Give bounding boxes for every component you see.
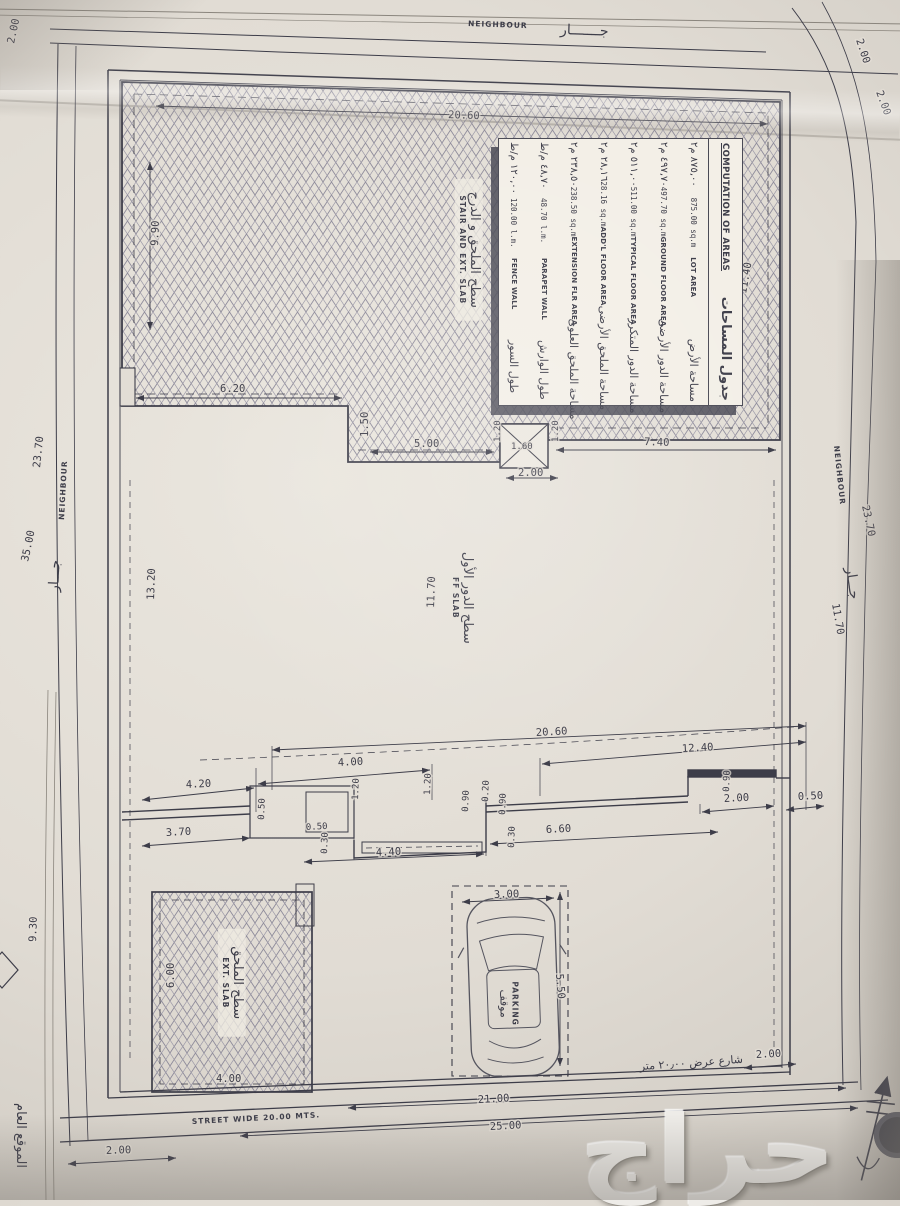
cell-value: 48.70 l.m. bbox=[539, 198, 548, 258]
site-plan-partial-label: الموقع العام bbox=[13, 1103, 28, 1168]
dim-roof-step-740: 7.40 bbox=[644, 436, 670, 449]
dim-band-120v2: 1.20 bbox=[423, 773, 434, 795]
cell-value: 238.50 sq.m bbox=[569, 187, 578, 237]
cell-value: 875.00 sq.m bbox=[689, 198, 698, 258]
cell-value-ar: ٤٩٧,٧٠ م٢ bbox=[658, 142, 669, 187]
dim-right-2370: 23.70 bbox=[859, 504, 877, 537]
table-row: ١٢٠,٠٠ م/ط120.00 l.m.FENCE WALLطول السور bbox=[499, 139, 529, 405]
dim-band-200: 2.00 bbox=[724, 792, 750, 805]
dim-band-400: 4.00 bbox=[338, 756, 364, 769]
areas-table: COMPUTATION OF AREAS جدول المساحات ٨٧٥,٠… bbox=[500, 138, 743, 404]
dim-band-120v: 1.20 bbox=[351, 778, 362, 800]
dim-band-050v: 0.50 bbox=[257, 798, 268, 820]
areas-table-header: COMPUTATION OF AREAS جدول المساحات bbox=[708, 139, 742, 405]
dim-ext-930: 9.30 bbox=[27, 916, 40, 942]
table-row: ٤٨,٧٠ م/ط48.70 l.m.PARAPET WALLطول الوار… bbox=[529, 139, 559, 405]
dim-band-030v: 0.30 bbox=[320, 832, 331, 854]
dim-roof-width: 20.60 bbox=[448, 109, 480, 122]
dim-right-setback-b: 2.00 bbox=[873, 89, 893, 117]
dim-band-090v2: 0.90 bbox=[498, 793, 509, 815]
dim-roof-step-150: 1.50 bbox=[359, 412, 371, 437]
dim-parking-300: 3.00 bbox=[494, 888, 520, 901]
parking-label-ar: موقف bbox=[497, 964, 510, 1044]
cell-value-ar: ١٢٠,٠٠ م/ط bbox=[508, 142, 519, 198]
boundary-line-top bbox=[50, 29, 898, 74]
cell-label-ar: طول الوارش bbox=[537, 340, 550, 402]
cell-label-ar: طول السور bbox=[507, 340, 520, 402]
cell-label-ar: مساحة الملحق الأرضى bbox=[597, 306, 610, 411]
dim-left-2370: 23.70 bbox=[31, 436, 46, 469]
table-row: ٨٧٥,٠٠ م٢875.00 sq.mLOT AREAمساحة الأرض bbox=[678, 139, 708, 405]
dim-right-1170: 11.70 bbox=[829, 602, 846, 635]
dim-ext-600: 6.00 bbox=[165, 963, 177, 988]
ff-slab-label-en: FF SLAB bbox=[450, 533, 459, 663]
dim-band-370: 3.70 bbox=[166, 826, 192, 839]
stair-ext-slab-label-ar: سطح الملحق و الدرج bbox=[466, 183, 481, 317]
cell-label-ar: مساحة الأرض bbox=[687, 339, 700, 402]
cell-label-en: LOT AREA bbox=[689, 257, 697, 339]
dim-ext-400: 4.00 bbox=[216, 1073, 241, 1085]
parking-label: PARKING موقف bbox=[497, 964, 518, 1044]
dim-band-030v2: 0.30 bbox=[507, 826, 518, 848]
dim-right-setback-a: 2.00 bbox=[853, 37, 872, 65]
dim-band-090v3: 0.90 bbox=[722, 770, 733, 792]
boundary-line-left bbox=[0, 44, 88, 1200]
dim-band-440: 4.40 bbox=[376, 846, 402, 859]
photo-of-site-plan: { "colors": {"paper":"#e2ddd5","ink":"#3… bbox=[0, 0, 900, 1200]
ext-slab-label-en: EXT. SLAB bbox=[220, 933, 229, 1033]
dim-left-3500: 35.00 bbox=[19, 529, 37, 562]
cell-label-en: PARAPET WALL bbox=[540, 258, 548, 340]
cell-label-en: GROUND FLOOR AREA bbox=[659, 236, 667, 318]
ff-slab-label: سطح الدور الأول FF SLAB bbox=[450, 533, 474, 663]
cell-label-en: EXTENSION FLR AREA bbox=[570, 236, 578, 318]
dim-roof-step-120b: 1.20 bbox=[551, 420, 561, 442]
ff-slab-label-ar: سطح الدور الأول bbox=[459, 533, 474, 663]
cell-value-ar: ٨٧٥,٠٠ م٢ bbox=[688, 142, 699, 198]
cell-label-ar: مساحة الدور المتكرر bbox=[627, 318, 640, 413]
dim-roof-step-120a: 1.20 bbox=[493, 420, 503, 442]
dim-band-2060: 20.60 bbox=[536, 725, 568, 739]
dim-band-090v: 0.90 bbox=[461, 790, 472, 812]
dim-band-050a: 0.50 bbox=[798, 790, 824, 803]
dim-roof-step-200: 2.00 bbox=[518, 467, 543, 479]
dim-roof-step-160: 1.60 bbox=[511, 442, 533, 452]
cell-value-ar: ٥١١,٠٠ م٢ bbox=[628, 142, 639, 187]
boundary-line-right bbox=[792, 2, 876, 1090]
cell-label-en: TYPICAL FLOOR AREA bbox=[629, 236, 637, 318]
areas-table-title-ar: جدول المساحات bbox=[718, 297, 733, 401]
areas-table-title-en: COMPUTATION OF AREAS bbox=[721, 143, 731, 297]
boundary-right-en: NEIGHBOUR bbox=[832, 445, 847, 505]
haraj-watermark: حراج bbox=[580, 1096, 836, 1206]
dim-street-200l: 2.00 bbox=[106, 1144, 132, 1157]
cell-value: 511.00 sq.m bbox=[629, 187, 638, 237]
cell-value-ar: ٢٣٨,٥٠ م٢ bbox=[568, 142, 579, 187]
cell-value: 497.70 sq.m bbox=[659, 187, 668, 237]
table-row: ٢٨,١٦ م٢28.16 sq.mADD'L FLOOR AREAمساحة … bbox=[589, 139, 619, 405]
cell-value-ar: ٢٨,١٦ م٢ bbox=[598, 142, 609, 181]
boundary-left-en: NEIGHBOUR bbox=[57, 460, 69, 520]
cell-label-ar: مساحة الدور الأرضى bbox=[657, 318, 670, 413]
dim-band-1240: 12.40 bbox=[682, 741, 714, 755]
dim-top-left-setback: 2.00 bbox=[5, 17, 22, 44]
table-row: ٢٣٨,٥٠ م٢238.50 sq.mEXTENSION FLR AREAمس… bbox=[559, 139, 589, 405]
dim-roof-step-620: 6.20 bbox=[220, 383, 245, 395]
dim-roof-step-500: 5.00 bbox=[414, 438, 439, 450]
dim-roof-left: 9.90 bbox=[149, 220, 162, 246]
ext-slab-label-ar: سطح الملحق bbox=[229, 933, 244, 1033]
stair-ext-slab-label-en: STAIR AND EXT. SLAB bbox=[457, 183, 466, 317]
dim-parking-550: 5.50 bbox=[553, 973, 567, 999]
cell-value: 120.00 l.m. bbox=[509, 198, 518, 258]
table-row: ٥١١,٠٠ م٢511.00 sq.mTYPICAL FLOOR AREAمس… bbox=[618, 139, 648, 405]
boundary-right-ar: جـــار bbox=[842, 565, 862, 600]
dim-street-200r: 2.00 bbox=[756, 1048, 782, 1061]
dim-band-050b: 0.50 bbox=[306, 822, 328, 833]
dim-mid-1320: 13.20 bbox=[145, 568, 158, 600]
cell-value: 28.16 sq.m bbox=[599, 181, 608, 226]
ext-slab-label: سطح الملحق EXT. SLAB bbox=[218, 929, 246, 1037]
dim-band-660: 6.60 bbox=[546, 823, 572, 836]
dim-mid-1170: 11.70 bbox=[425, 576, 438, 608]
cell-label-en: FENCE WALL bbox=[510, 258, 518, 340]
street-width-en: STREET WIDE 20.00 MTS. bbox=[192, 1110, 321, 1126]
boundary-top-ar: جـــــــار bbox=[559, 22, 609, 40]
cell-value-ar: ٤٨,٧٠ م/ط bbox=[538, 142, 549, 198]
stair-ext-slab-label: سطح الملحق و الدرج STAIR AND EXT. SLAB bbox=[455, 179, 483, 321]
cell-label-en: ADD'L FLOOR AREA bbox=[600, 227, 608, 306]
boundary-left-ar: جـــار bbox=[46, 559, 64, 593]
cell-label-ar: مساحة الملحق العلوى bbox=[567, 318, 580, 419]
table-row: ٤٩٧,٧٠ م٢497.70 sq.mGROUND FLOOR AREAمسا… bbox=[648, 139, 678, 405]
dim-street-2500: 25.00 bbox=[490, 1119, 522, 1133]
dim-street-2100: 21.00 bbox=[478, 1092, 510, 1106]
boundary-top-en: NEIGHBOUR bbox=[468, 19, 528, 30]
dim-band-020v: 0.20 bbox=[481, 780, 492, 802]
parking-label-en: PARKING bbox=[510, 964, 519, 1044]
dim-band-420: 4.20 bbox=[186, 778, 212, 791]
